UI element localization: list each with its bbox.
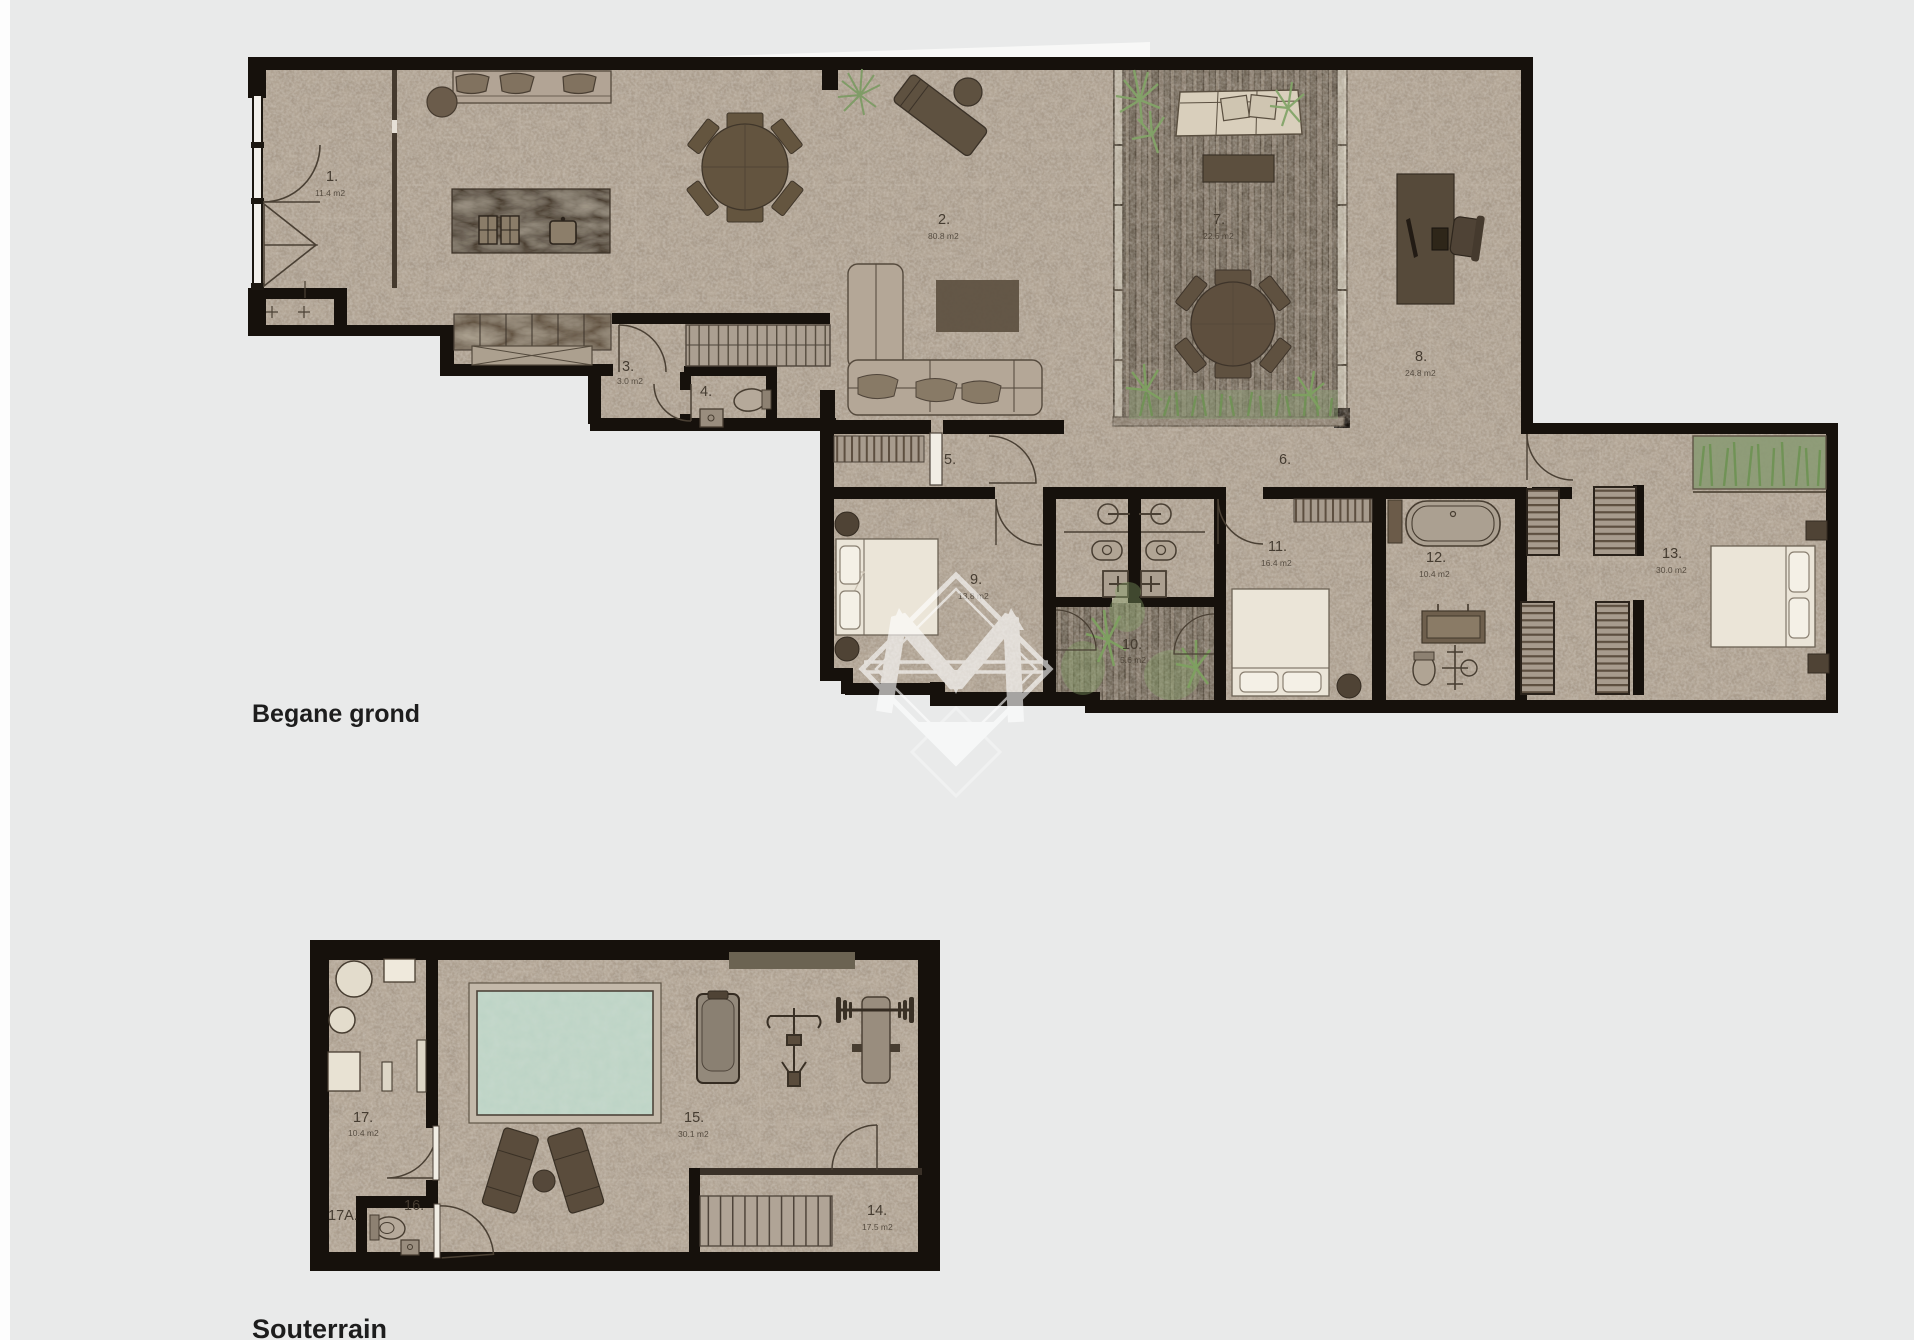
svg-text:2.: 2.	[938, 212, 950, 228]
svg-text:17A.: 17A.	[328, 1208, 358, 1224]
svg-text:30.0 m2: 30.0 m2	[1656, 565, 1687, 575]
svg-text:24.8 m2: 24.8 m2	[1405, 368, 1436, 378]
svg-text:7.: 7.	[1213, 212, 1225, 228]
svg-text:10.4 m2: 10.4 m2	[348, 1128, 379, 1138]
svg-text:14.: 14.	[867, 1203, 887, 1219]
svg-text:11.4 m2: 11.4 m2	[315, 188, 345, 198]
svg-text:17.5 m2: 17.5 m2	[862, 1222, 893, 1232]
svg-text:Begane grond: Begane grond	[252, 700, 420, 728]
svg-text:3.: 3.	[622, 359, 634, 375]
svg-text:3.0 m2: 3.0 m2	[617, 376, 643, 386]
svg-text:13.: 13.	[1662, 546, 1682, 562]
svg-text:12.: 12.	[1426, 550, 1446, 566]
svg-text:17.: 17.	[353, 1110, 373, 1126]
svg-text:22.6 m2: 22.6 m2	[1203, 231, 1234, 241]
svg-text:8.: 8.	[1415, 349, 1427, 365]
svg-text:10.4 m2: 10.4 m2	[1419, 569, 1450, 579]
svg-text:5.6 m2: 5.6 m2	[1120, 655, 1146, 665]
svg-text:4.: 4.	[700, 384, 712, 400]
svg-text:15.: 15.	[684, 1110, 704, 1126]
svg-text:Souterrain: Souterrain	[252, 1314, 387, 1340]
svg-text:5.: 5.	[944, 452, 956, 468]
svg-text:80.8 m2: 80.8 m2	[928, 231, 959, 241]
svg-text:9.: 9.	[970, 572, 982, 588]
svg-text:11.: 11.	[1268, 539, 1287, 555]
svg-text:16.: 16.	[404, 1198, 424, 1214]
svg-text:10.: 10.	[1122, 637, 1142, 653]
svg-text:6.: 6.	[1279, 452, 1291, 468]
svg-text:30.1 m2: 30.1 m2	[678, 1129, 709, 1139]
svg-text:1.: 1.	[326, 169, 338, 185]
svg-text:16.4 m2: 16.4 m2	[1261, 558, 1292, 568]
